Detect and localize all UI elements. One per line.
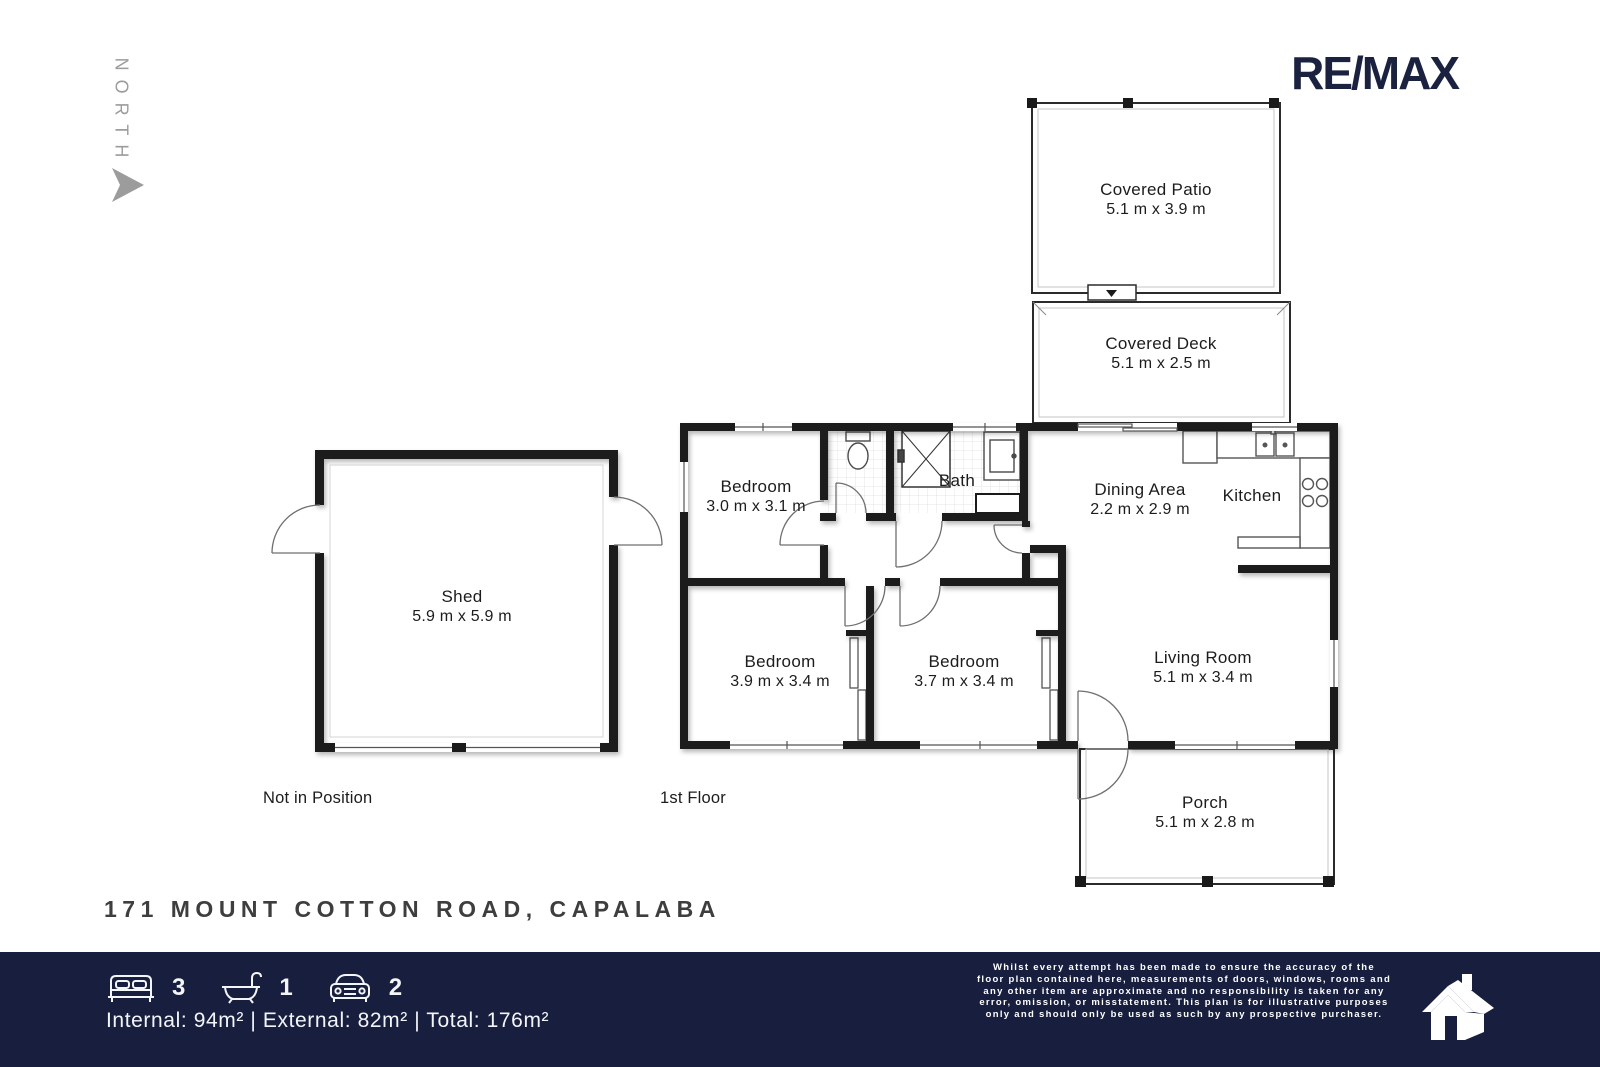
bed-icon [106, 971, 156, 1005]
bath-count: 1 [279, 974, 292, 1002]
room-label-living: Living Room 5.1 m x 3.4 m [1153, 648, 1253, 688]
doors [780, 483, 1128, 799]
remax-logo: RE/MAX [1291, 46, 1458, 100]
vanity-icon [984, 432, 1020, 480]
property-stats: 3 1 2 [106, 970, 402, 1006]
area-summary: Internal: 94m² | External: 82m² | Total:… [106, 1009, 549, 1033]
property-address: 171 MOUNT COTTON ROAD, CAPALABA [104, 896, 721, 923]
car-icon [327, 971, 373, 1005]
room-label-shed: Shed 5.9 m x 5.9 m [412, 587, 512, 627]
room-label-porch: Porch 5.1 m x 2.8 m [1155, 793, 1255, 833]
north-arrow-icon [112, 168, 144, 202]
floorplan-page: NORTH RE/MAX Covered Patio 5.1 m x 3.9 m… [0, 0, 1600, 1067]
caption-first-floor: 1st Floor [660, 789, 726, 808]
bath-icon [219, 970, 263, 1006]
room-label-bedroom-2: Bedroom 3.9 m x 3.4 m [730, 652, 830, 692]
footer-bar: 3 1 2 Internal: 94m² | External: 82m² | … [0, 952, 1600, 1067]
caption-not-in-position: Not in Position [263, 789, 372, 808]
toilet-icon [846, 432, 870, 469]
room-label-dining: Dining Area 2.2 m x 2.9 m [1090, 480, 1190, 520]
disclaimer-text: Whilst every attempt has been made to en… [958, 962, 1410, 1021]
room-label-kitchen: Kitchen [1223, 486, 1282, 506]
floor-plan [0, 0, 1600, 952]
room-label-bath: Bath [939, 471, 975, 491]
room-label-bedroom-3: Bedroom 3.7 m x 3.4 m [914, 652, 1014, 692]
room-label-bedroom-1: Bedroom 3.0 m x 3.1 m [706, 477, 806, 517]
north-label: NORTH [111, 58, 132, 167]
bed-count: 3 [172, 974, 185, 1002]
car-count: 2 [389, 974, 402, 1002]
room-label-covered-patio: Covered Patio 5.1 m x 3.9 m [1100, 180, 1212, 220]
room-label-covered-deck: Covered Deck 5.1 m x 2.5 m [1105, 334, 1216, 374]
house-icon [1418, 970, 1498, 1055]
